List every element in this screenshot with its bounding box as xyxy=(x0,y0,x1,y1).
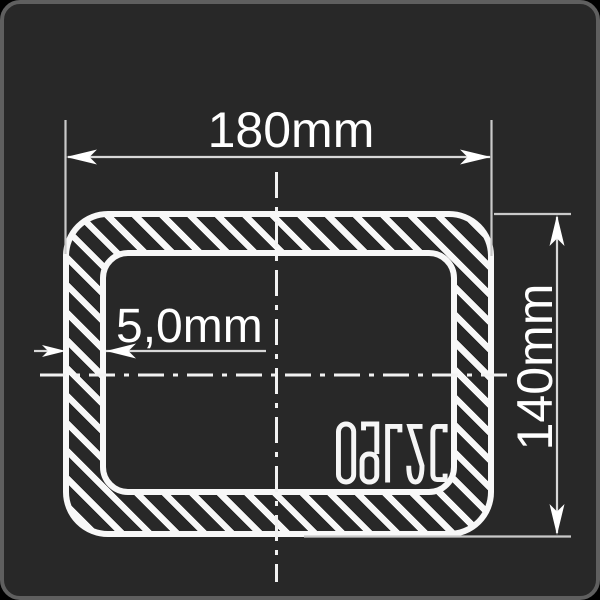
glyph-0 xyxy=(338,424,353,482)
glyph-G xyxy=(388,426,400,482)
wall-thickness-label: 5,0mm xyxy=(116,303,263,351)
glyph-S xyxy=(433,426,445,479)
screenshot-canvas: 180mm 140mm 5,0mm xyxy=(0,0,600,600)
centerlines xyxy=(40,172,514,582)
steel-grade-mark xyxy=(336,420,452,486)
glyph-9-flipped xyxy=(362,424,377,482)
glyph-2-flipped xyxy=(409,426,423,482)
height-dimension-label: 140mm xyxy=(510,267,560,467)
drawing-panel: 180mm 140mm 5,0mm xyxy=(0,0,600,600)
width-dimension-label: 180mm xyxy=(191,105,391,155)
